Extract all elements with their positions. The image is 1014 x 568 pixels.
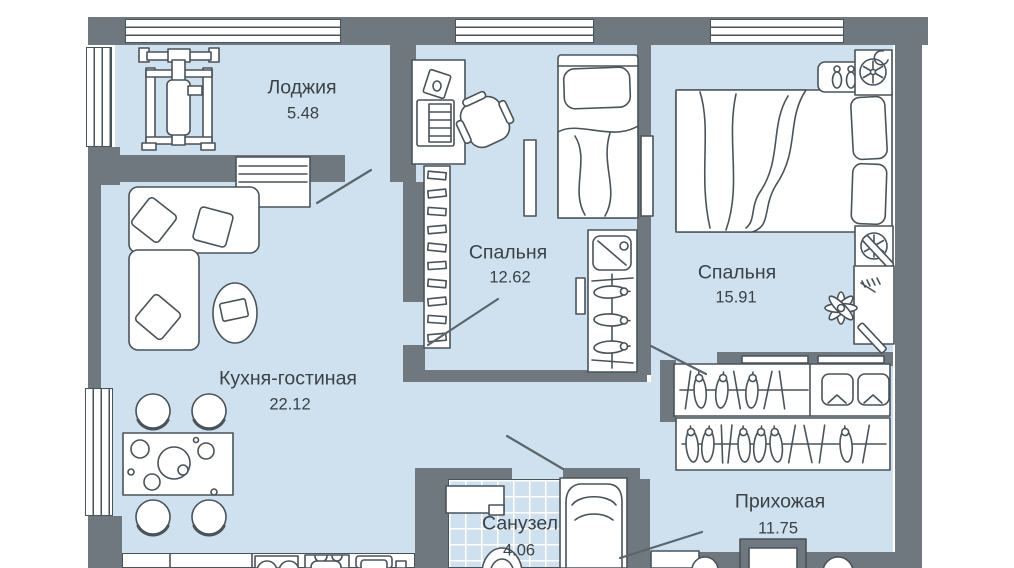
bathtub xyxy=(560,478,627,568)
floor-plan: Лоджия 5.48 Спальня 12.62 Спальня 15.91 … xyxy=(0,0,1014,568)
coffee-table xyxy=(213,283,257,343)
room-label-bathroom: Санузел xyxy=(482,513,558,536)
room-area-bathroom: 4.06 xyxy=(503,542,535,561)
hall-wardrobe-2 xyxy=(676,418,890,470)
mirror-bedroom-1 xyxy=(576,278,585,314)
ladder-shelf xyxy=(424,166,450,348)
room-label-loggia: Лоджия xyxy=(267,77,336,100)
bathroom-door-swing xyxy=(507,436,563,469)
desk-bedroom-1 xyxy=(412,60,519,164)
hall-wardrobe-1 xyxy=(674,356,890,416)
room-area-hallway: 11.75 xyxy=(758,520,798,539)
room-area-bedroom-1: 12.62 xyxy=(489,269,530,288)
wardrobe-bedroom-1 xyxy=(588,230,637,372)
hallway-cabinet xyxy=(740,539,806,568)
room-area-kitchen-living: 22.12 xyxy=(269,396,310,415)
dining-set xyxy=(123,394,233,535)
room-area-loggia: 5.48 xyxy=(287,105,319,124)
room-area-bedroom-2: 15.91 xyxy=(715,289,756,308)
hallway-stool xyxy=(823,557,853,568)
entrance-door xyxy=(651,551,699,568)
kitchen-appliances xyxy=(170,554,406,568)
single-bed xyxy=(558,55,638,218)
room-label-kitchen-living: Кухня-гостиная xyxy=(219,368,357,391)
washing-machine xyxy=(446,486,504,515)
fan-unit-top xyxy=(855,50,892,95)
loggia-door-swing xyxy=(317,170,371,203)
door-swings xyxy=(317,170,706,558)
room-label-bedroom-2: Спальня xyxy=(698,262,776,285)
petal-chair xyxy=(825,292,857,324)
room-label-bedroom-1: Спальня xyxy=(469,242,547,265)
tv-panel-bedroom-2 xyxy=(641,136,653,216)
room-label-hallway: Прихожая xyxy=(735,491,825,514)
tv-panel-bedroom-1 xyxy=(524,140,536,216)
exercise-machine xyxy=(139,48,219,150)
double-bed xyxy=(676,90,892,232)
